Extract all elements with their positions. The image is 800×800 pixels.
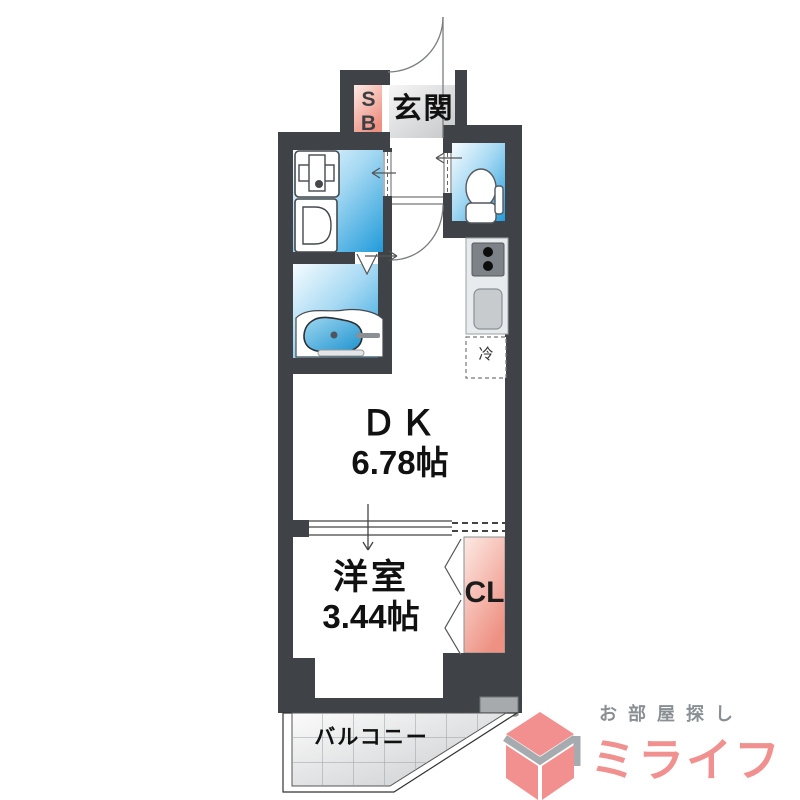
washing-machine-icon bbox=[295, 151, 339, 197]
bathtub-icon bbox=[296, 309, 383, 357]
closet-folding-doors bbox=[445, 539, 461, 655]
fridge-label: 冷 bbox=[466, 347, 506, 363]
shoe-box-label: SB bbox=[353, 88, 383, 134]
kitchen-sink-icon bbox=[474, 289, 502, 329]
brand-tagline: お部屋探し bbox=[599, 700, 789, 726]
western-room-size: 3.44帖 bbox=[286, 600, 456, 635]
closet-label: CL bbox=[463, 577, 506, 609]
closet-open-top-dashed bbox=[452, 523, 505, 531]
balcony-label: バルコニー bbox=[299, 727, 444, 749]
dk-room-name: ＤＫ bbox=[330, 406, 470, 443]
balcony-tiles bbox=[292, 713, 506, 786]
floor-plan-page: 玄関 SB ＤＫ 6.78帖 洋室 3.44帖 CL 冷 バルコニー お部屋探し… bbox=[0, 0, 800, 800]
stove-icon bbox=[472, 243, 504, 276]
brand-name: ミライフ bbox=[590, 724, 800, 790]
western-room-name: 洋室 bbox=[301, 560, 441, 597]
hall-door bbox=[392, 196, 443, 260]
vanity-sink-icon bbox=[295, 199, 337, 252]
balcony bbox=[283, 713, 517, 792]
dk-room-size: 6.78帖 bbox=[315, 446, 485, 481]
faucet-icon bbox=[356, 333, 380, 338]
hall-door-arc bbox=[392, 205, 443, 260]
entrance-label: 玄関 bbox=[389, 94, 458, 124]
